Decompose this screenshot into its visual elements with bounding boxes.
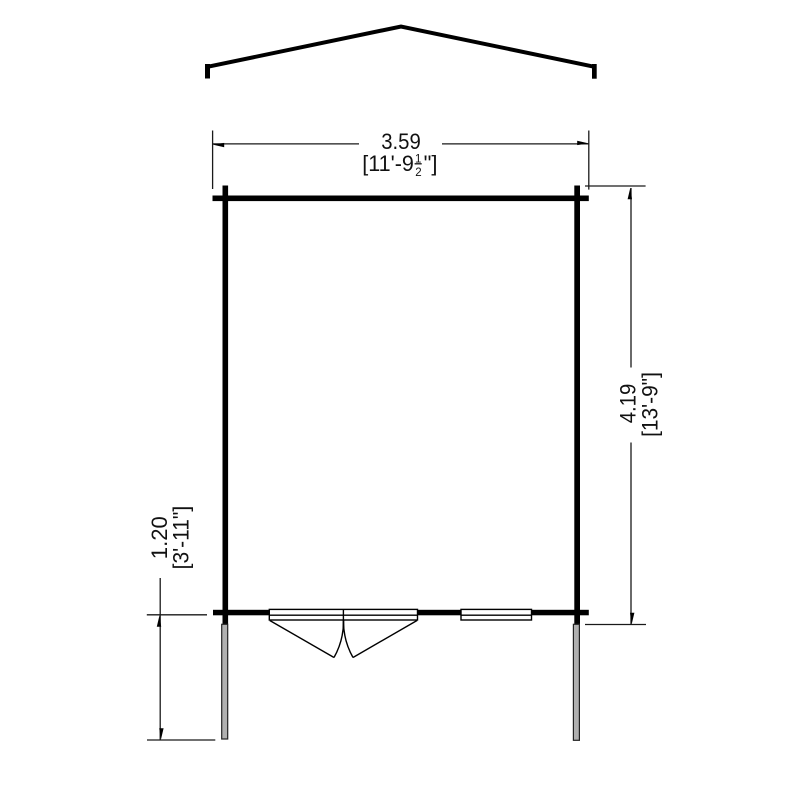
svg-text:"]: "]	[424, 151, 438, 176]
svg-text:[11'-9: [11'-9	[362, 151, 414, 176]
svg-text:[13'-9"]: [13'-9"]	[638, 372, 663, 437]
svg-text:2: 2	[415, 167, 421, 179]
svg-text:[3'-11"]: [3'-11"]	[169, 506, 194, 570]
